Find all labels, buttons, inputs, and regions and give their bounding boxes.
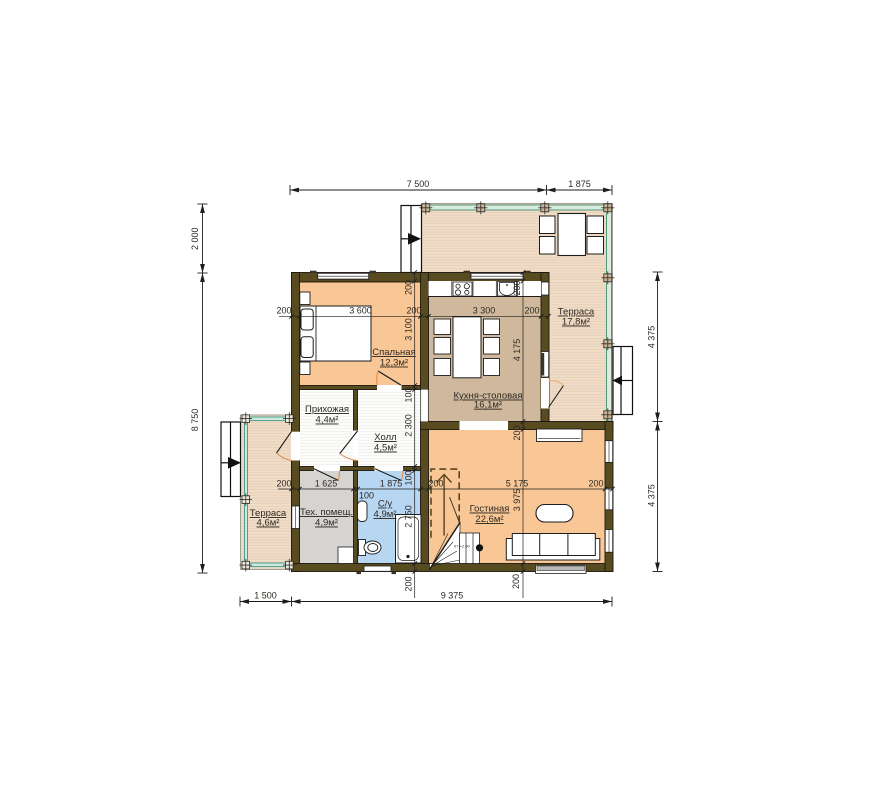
svg-text:200: 200 — [276, 478, 291, 488]
svg-text:3 975: 3 975 — [512, 489, 522, 512]
svg-text:3 300: 3 300 — [473, 306, 496, 316]
svg-text:Прихожая: Прихожая — [305, 404, 349, 415]
svg-text:4 375: 4 375 — [647, 484, 657, 507]
svg-text:4,9м²: 4,9м² — [315, 518, 338, 529]
svg-text:2 000: 2 000 — [190, 227, 200, 250]
svg-text:3 600: 3 600 — [349, 306, 372, 316]
svg-text:100: 100 — [404, 470, 414, 485]
svg-text:1 500: 1 500 — [254, 591, 277, 601]
svg-text:200: 200 — [404, 280, 414, 295]
svg-text:8 750: 8 750 — [190, 409, 200, 432]
svg-text:16,1м²: 16,1м² — [474, 400, 502, 411]
svg-text:07 +2.90: 07 +2.90 — [454, 544, 470, 549]
svg-text:1 875: 1 875 — [568, 179, 591, 189]
svg-text:9 375: 9 375 — [441, 591, 464, 601]
svg-text:200: 200 — [406, 306, 421, 316]
svg-text:4,5м²: 4,5м² — [374, 443, 397, 454]
svg-text:200: 200 — [428, 478, 443, 488]
svg-text:200: 200 — [512, 280, 522, 295]
svg-text:200: 200 — [524, 306, 539, 316]
svg-text:4 175: 4 175 — [512, 339, 522, 362]
svg-text:200: 200 — [511, 574, 521, 589]
svg-text:1 625: 1 625 — [315, 478, 338, 488]
svg-text:Гостиная: Гостиная — [470, 504, 510, 515]
svg-text:4,9м²: 4,9м² — [374, 509, 397, 520]
svg-text:Холл: Холл — [374, 432, 396, 443]
svg-text:7 500: 7 500 — [407, 179, 430, 189]
svg-text:200: 200 — [588, 478, 603, 488]
svg-text:2 750: 2 750 — [404, 505, 414, 528]
svg-text:2 300: 2 300 — [404, 414, 414, 437]
svg-text:Тех. помещ.: Тех. помещ. — [300, 507, 353, 518]
svg-text:Спальная: Спальная — [372, 347, 415, 358]
svg-text:200: 200 — [404, 576, 414, 591]
svg-text:1 875: 1 875 — [380, 478, 403, 488]
svg-text:5 175: 5 175 — [506, 478, 529, 488]
svg-text:С/у: С/у — [378, 499, 393, 510]
svg-text:4 375: 4 375 — [647, 326, 657, 349]
svg-text:22,6м²: 22,6м² — [475, 514, 503, 525]
svg-text:17,8м²: 17,8м² — [562, 317, 590, 328]
svg-text:100: 100 — [359, 490, 374, 500]
svg-text:4,4м²: 4,4м² — [316, 415, 339, 426]
svg-text:200: 200 — [276, 306, 291, 316]
svg-text:200: 200 — [512, 425, 522, 440]
svg-text:100: 100 — [404, 387, 414, 402]
svg-text:3 100: 3 100 — [404, 318, 414, 341]
svg-text:12,3м²: 12,3м² — [380, 358, 408, 369]
svg-text:4,6м²: 4,6м² — [257, 518, 280, 529]
